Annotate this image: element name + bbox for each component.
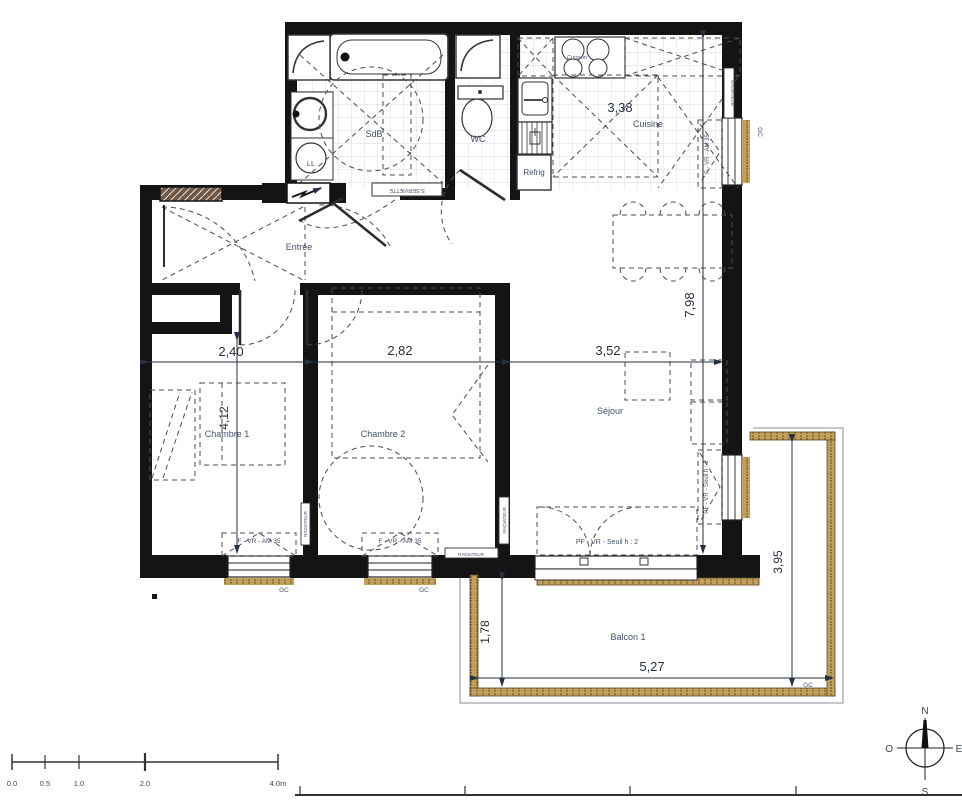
- chambre2-circle: [319, 446, 423, 550]
- label-sejour: Séjour: [597, 406, 623, 416]
- label-fenetre-cuisine: F - VR - AM 35: [705, 134, 711, 174]
- entree-closet-cross: [162, 207, 305, 280]
- compass-south: S: [922, 787, 929, 798]
- washbasin: [291, 92, 333, 138]
- label-entree: Entrée: [286, 242, 313, 252]
- label-chambre2: Chambre 2: [361, 429, 406, 439]
- chambre1-wardrobe: [150, 390, 195, 480]
- label-gc-chambre2: GC: [419, 587, 429, 594]
- label-balcon: Balcon 1: [610, 632, 645, 642]
- entree-structural-hatch: [160, 187, 222, 201]
- chambre1-wardrobe-hatch: [152, 392, 192, 478]
- hob-cuisson: [555, 37, 625, 78]
- bathtub: [330, 34, 448, 80]
- label-gc-balcon: GC: [803, 682, 813, 689]
- floor-plan-page: SdB WC Cuisine Entrée Chambre 1 Chambre …: [0, 0, 962, 800]
- label-lave-linge: LL: [307, 159, 315, 168]
- label-fenetre-chambre1: F - VR - AM 35: [238, 538, 281, 545]
- dim-395: 3,95: [771, 550, 785, 574]
- compass-rose: N S E O: [885, 706, 962, 798]
- wall-cabinet-left: [288, 35, 330, 80]
- scale-05: 0.5: [40, 779, 50, 788]
- label-radiateur-sejour: RADIATEUR: [502, 506, 507, 532]
- label-pf-sejour: PF - VR - Seuil h : 2: [576, 539, 638, 546]
- chambre2-triangle: [452, 365, 488, 462]
- label-seche-serviette: S.SERVIETTE: [389, 187, 425, 193]
- label-gc-chambre1: GC: [279, 587, 289, 594]
- compass-west: O: [885, 744, 893, 755]
- door-fenetre-sejour: [535, 556, 697, 580]
- floor-plan-drawing: SdB WC Cuisine Entrée Chambre 1 Chambre …: [0, 0, 962, 800]
- dim-240: 2,40: [218, 344, 243, 359]
- entry-door-symbol: [287, 183, 330, 203]
- window-chambre2: [364, 556, 436, 585]
- label-radiateur-cuisine: RADIATEUR: [730, 80, 735, 106]
- sejour-door-swing: [540, 507, 640, 557]
- scale-bar: 0.0 0.5 1.0 2.0 4.0m: [7, 753, 287, 788]
- compass-north: N: [921, 706, 928, 717]
- label-refrigerateur: Refrig: [523, 168, 544, 177]
- entree-closet-arc: [162, 207, 255, 281]
- dining-chairs-bottom: [620, 268, 725, 281]
- sejour-armchair-2: [691, 402, 727, 444]
- chambre1-bed: [200, 383, 285, 465]
- label-cuisson: Cuisson: [567, 55, 587, 61]
- sejour-window-labelbox: [698, 450, 722, 524]
- scale-1: 1.0: [74, 779, 84, 788]
- dishwasher: [518, 122, 552, 154]
- chambre2-bed: [332, 288, 480, 458]
- dim-178: 1,78: [478, 620, 492, 644]
- wall-cabinet-right: [456, 35, 500, 78]
- dim-282: 2,82: [387, 343, 412, 358]
- compass-east: E: [956, 744, 962, 755]
- sejour-door-labelbox: [537, 507, 697, 555]
- window-chambre1: [224, 556, 294, 585]
- entry-door-leaf: [333, 203, 386, 246]
- dim-412: 4,12: [217, 406, 231, 430]
- label-wc: WC: [471, 134, 486, 144]
- label-radiateur-chambre1: RADIATEUR: [303, 510, 308, 536]
- title-block-edge: [295, 786, 962, 795]
- compass-needle: [922, 720, 929, 748]
- scale-2: 2.0: [140, 779, 150, 788]
- dim-cuisine: 3,38: [607, 100, 632, 115]
- sejour-low-table: [625, 352, 670, 400]
- label-fenetre-chambre2: F - VR - AM 35: [379, 538, 422, 545]
- label-pf-sejour-droite: PF - VR - Seuil h : 2: [704, 460, 710, 514]
- sejour-armchair-1: [691, 360, 727, 400]
- label-cuisine: Cuisine: [633, 119, 663, 129]
- scale-4: 4.0m: [270, 779, 287, 788]
- label-gc-cuisine: GC: [756, 127, 763, 137]
- kitchen-sink: [518, 78, 552, 122]
- dim-527: 5,27: [639, 659, 664, 674]
- window-sejour-droite: [722, 455, 750, 520]
- dim-352: 3,52: [595, 343, 620, 358]
- scale-0: 0.0: [7, 779, 17, 788]
- dining-table: [613, 215, 732, 268]
- chambre1-door-arc: [240, 290, 295, 345]
- label-radiateur-chambre2: RADIATEUR: [458, 552, 484, 557]
- window-cuisine: [722, 118, 750, 185]
- label-sdb: SdB: [365, 129, 382, 139]
- dining-chairs-top: [620, 202, 725, 215]
- dim-798: 7,98: [682, 292, 697, 317]
